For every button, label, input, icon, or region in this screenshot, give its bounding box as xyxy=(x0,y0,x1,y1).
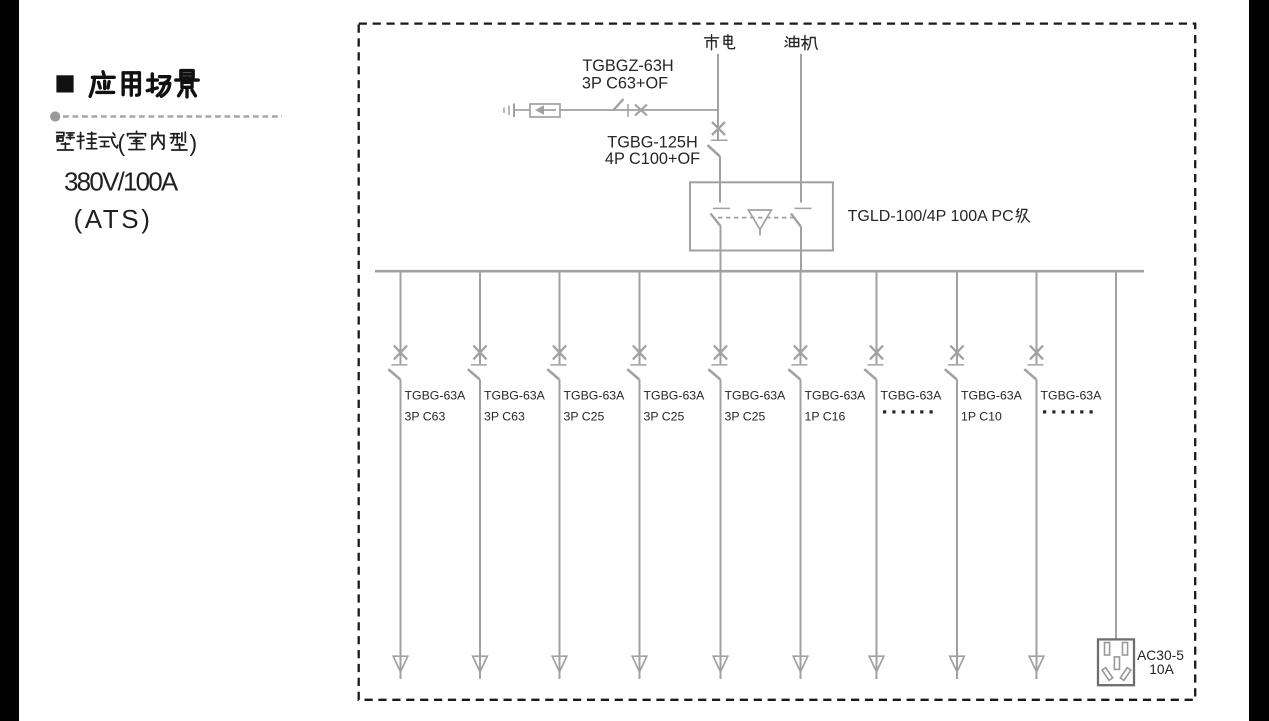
svg-text:TGBG-63A: TGBG-63A xyxy=(805,389,867,403)
svg-text:AC30-5: AC30-5 xyxy=(1137,648,1184,663)
svg-text:TGBG-63A: TGBG-63A xyxy=(1041,389,1103,403)
svg-text:3P C63: 3P C63 xyxy=(405,410,446,424)
svg-text:1P C16: 1P C16 xyxy=(805,410,846,424)
svg-text:1P C10: 1P C10 xyxy=(961,410,1002,424)
svg-text:3P C25: 3P C25 xyxy=(644,410,685,424)
svg-text:TGBG-125H: TGBG-125H xyxy=(607,133,697,151)
svg-text:3P C25: 3P C25 xyxy=(564,410,605,424)
svg-text:4P C100+OF: 4P C100+OF xyxy=(605,150,700,168)
svg-text:3P C63: 3P C63 xyxy=(484,410,525,424)
svg-text:TGBG-63A: TGBG-63A xyxy=(725,389,787,403)
svg-text:10A: 10A xyxy=(1149,662,1174,677)
svg-text:TGLD-100/4P 100A PC: TGLD-100/4P 100A PC xyxy=(848,208,1014,225)
svg-text:TGBG-63A: TGBG-63A xyxy=(564,389,626,403)
svg-text:TGBG-63A: TGBG-63A xyxy=(484,389,546,403)
svg-text:TGBG-63A: TGBG-63A xyxy=(881,389,943,403)
svg-text:3P C25: 3P C25 xyxy=(725,410,766,424)
svg-text:TGBG-63A: TGBG-63A xyxy=(644,389,706,403)
svg-text:TGBG-63A: TGBG-63A xyxy=(961,389,1023,403)
svg-text:TGBG-63A: TGBG-63A xyxy=(405,389,467,403)
svg-text:TGBGZ-63H: TGBGZ-63H xyxy=(582,57,673,75)
svg-text:3P C63+OF: 3P C63+OF xyxy=(582,74,668,92)
